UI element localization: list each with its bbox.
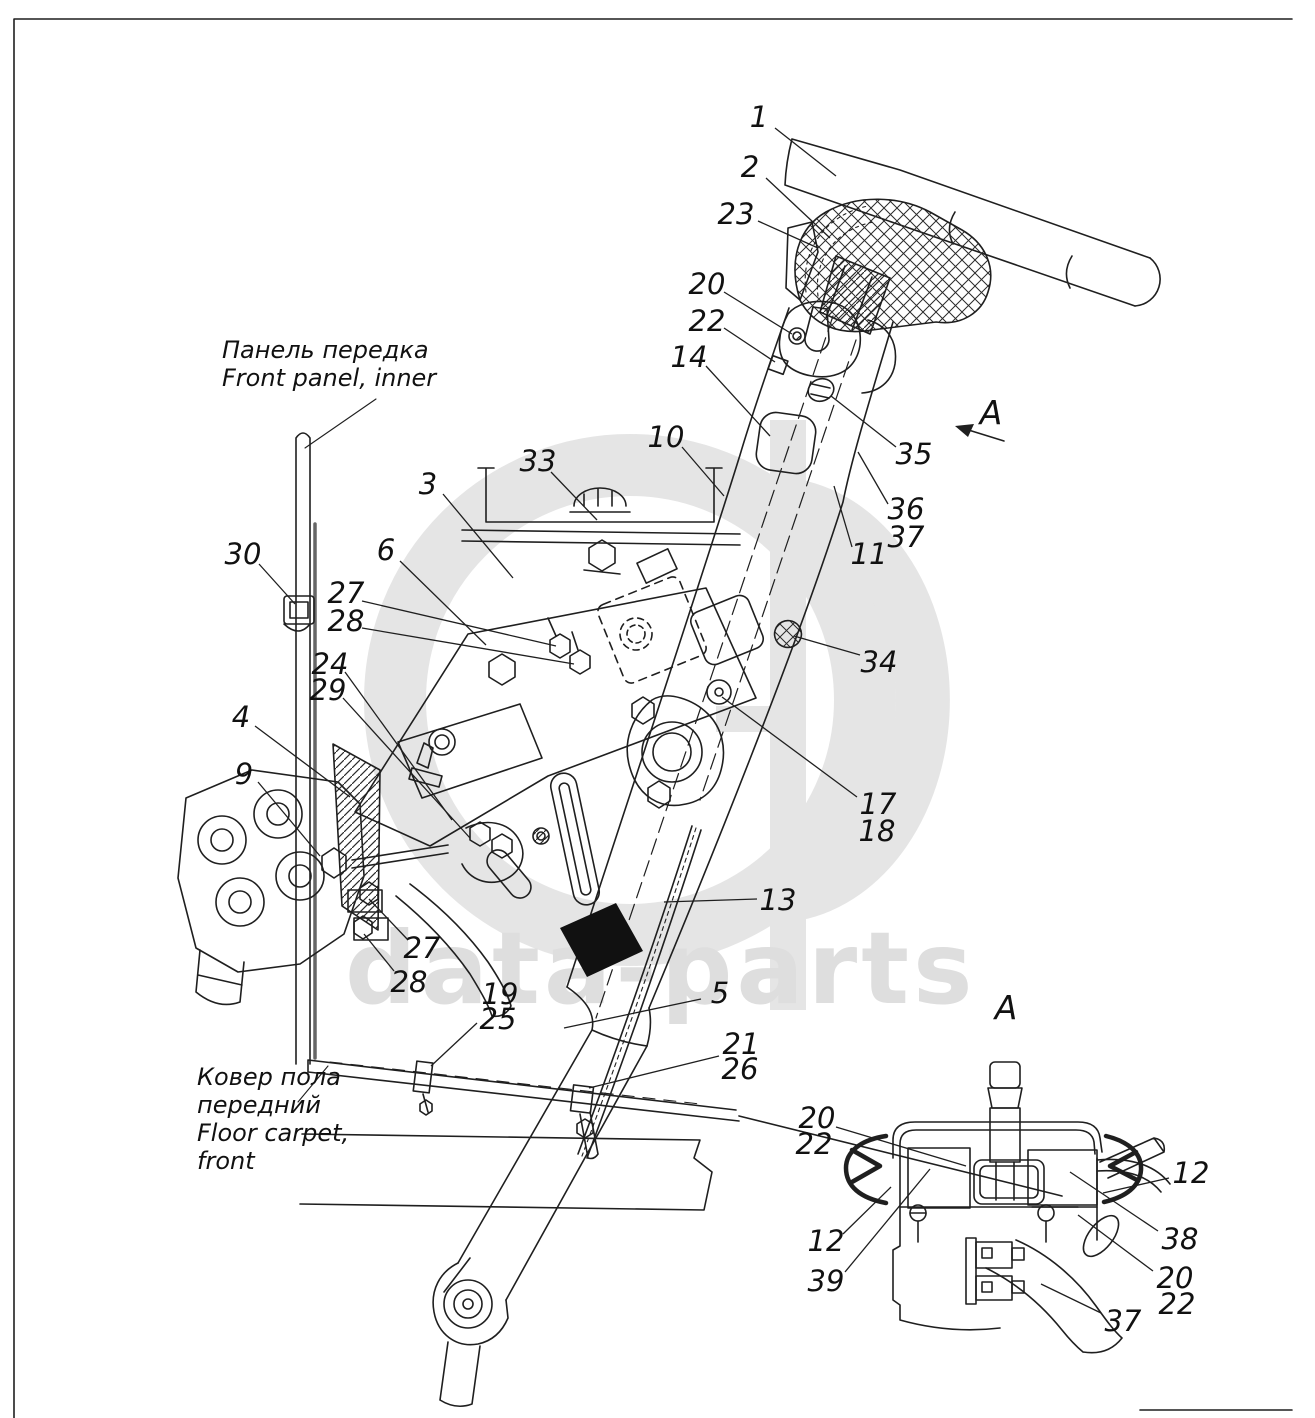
callout-main-29: 29: [310, 673, 347, 707]
callout-main-25: 25: [480, 1002, 517, 1036]
callout-detail-38: 38: [1162, 1222, 1199, 1256]
callout-main-30: 30: [225, 537, 262, 571]
note-front-panel-line-1: Панель передка: [222, 336, 429, 364]
callout-main-28: 28: [328, 604, 365, 638]
callout-detail-22: 22: [796, 1127, 833, 1161]
leader-line-1: [775, 128, 836, 176]
hole-35: [805, 375, 837, 405]
callout-main-27: 27: [404, 931, 441, 965]
leader-line-20: [1078, 1215, 1153, 1271]
detail-view-title: A: [993, 988, 1018, 1027]
leader-line-22: [724, 328, 775, 362]
wheel-rim-end: [1135, 258, 1160, 306]
note-floor-carpet-line-4: front: [197, 1147, 256, 1175]
stalk-knob: [990, 1062, 1020, 1088]
callout-main-22: 22: [689, 304, 726, 338]
callout-main-1: 1: [750, 100, 768, 134]
switch-body-left: [908, 1148, 970, 1208]
callout-main-26: 26: [722, 1052, 759, 1086]
callout-main-3: 3: [419, 467, 437, 501]
leader-line-20: [724, 292, 792, 334]
lever-37: [986, 1240, 1122, 1353]
floor-carpet-line: [308, 1060, 1062, 1196]
callout-main-14: 14: [671, 340, 708, 374]
note-floor-carpet-line-3: Floor carpet,: [197, 1119, 349, 1147]
shaft-stub: [440, 1342, 480, 1406]
leader-line-25: [431, 1023, 477, 1066]
diagram-page: data-parts: [0, 0, 1315, 1418]
callout-main-23: 23: [718, 197, 755, 231]
clip-12-left: [846, 1136, 886, 1203]
clip-30: [290, 602, 308, 618]
stalk-right: [1100, 1138, 1164, 1178]
floor: [300, 1060, 1062, 1210]
callout-main-35: 35: [896, 437, 933, 471]
callout-detail-12: 12: [1173, 1156, 1210, 1190]
note-front-panel: Панель передкаFront panel, inner: [222, 336, 438, 392]
leader-line-36: [858, 452, 888, 504]
note-front-panel-line-2: Front panel, inner: [222, 364, 438, 392]
callout-main-6: 6: [377, 533, 395, 567]
carpet-bolt-21: [570, 1085, 593, 1113]
leader-line-30: [259, 564, 295, 604]
callout-main-4: 4: [232, 700, 250, 734]
callout-main-5: 5: [711, 976, 729, 1010]
callout-main-9: 9: [235, 757, 253, 791]
watermark-text: data-parts: [345, 910, 977, 1027]
diagram-canvas: data-parts: [0, 0, 1315, 1418]
leader-line-12: [843, 1187, 891, 1234]
leader-line-37: [1041, 1284, 1101, 1313]
leader-line-38: [1070, 1172, 1158, 1231]
view-arrow-letter: A: [978, 393, 1003, 432]
callout-main-20: 20: [689, 267, 726, 301]
callout-detail-12: 12: [808, 1224, 845, 1258]
leader-line-14: [706, 366, 770, 436]
callout-main-10: 10: [648, 420, 685, 454]
front-panel: [284, 433, 315, 1064]
callout-main-33: 33: [520, 444, 557, 478]
callout-detail-37: 37: [1105, 1304, 1142, 1338]
note-floor-carpet: Ковер полапереднийFloor carpet,front: [197, 1063, 349, 1175]
note-floor-carpet-line-2: передний: [197, 1091, 321, 1119]
note-floor-carpet-line-1: Ковер пола: [197, 1063, 341, 1091]
callout-main-34: 34: [861, 645, 898, 679]
nut-22: [768, 356, 788, 375]
callout-main-28: 28: [391, 965, 428, 999]
callout-main-13: 13: [760, 883, 797, 917]
leader-line-35: [831, 396, 896, 447]
callout-detail-22: 22: [1159, 1287, 1196, 1321]
callout-main-18: 18: [859, 814, 896, 848]
note-front-panel-leader: [305, 399, 376, 448]
horn-pad: [786, 199, 991, 334]
callout-main-37: 37: [888, 520, 925, 554]
callout-detail-39: 39: [808, 1264, 845, 1298]
carpet-clamp-19: [413, 1061, 433, 1093]
callout-main-11: 11: [851, 537, 888, 571]
callout-main-2: 2: [741, 150, 759, 184]
